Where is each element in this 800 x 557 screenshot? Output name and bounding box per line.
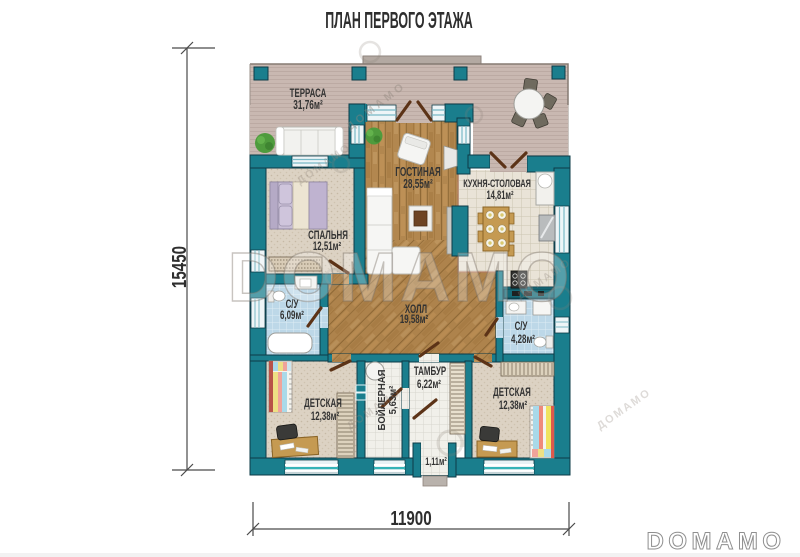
svg-text:DOMAMO: DOMAMO	[228, 238, 573, 316]
svg-text:12,38м²: 12,38м²	[499, 400, 528, 413]
svg-text:28,55м²: 28,55м²	[403, 177, 433, 191]
svg-text:DOMAMO: DOMAMO	[647, 528, 786, 555]
svg-text:ДЕТСКАЯ: ДЕТСКАЯ	[493, 387, 531, 400]
svg-text:12,38м²: 12,38м²	[311, 411, 340, 424]
svg-text:ТАМБУР: ТАМБУР	[414, 366, 447, 379]
svg-text:1,11м²: 1,11м²	[425, 456, 446, 468]
svg-text:ПЛАН ПЕРВОГО ЭТАЖА: ПЛАН ПЕРВОГО ЭТАЖА	[325, 7, 473, 33]
svg-text:14,81м²: 14,81м²	[486, 190, 514, 203]
svg-text:15450: 15450	[168, 246, 191, 288]
svg-text:11900: 11900	[390, 507, 431, 530]
svg-text:6,22м²: 6,22м²	[417, 379, 441, 392]
svg-text:31,76м²: 31,76м²	[293, 98, 323, 112]
svg-text:С/У: С/У	[515, 321, 528, 334]
svg-text:КУХНЯ-СТОЛОВАЯ: КУХНЯ-СТОЛОВАЯ	[463, 178, 531, 190]
svg-text:4,28м²: 4,28м²	[511, 334, 535, 347]
svg-text:ДЕТСКАЯ: ДЕТСКАЯ	[304, 398, 342, 411]
